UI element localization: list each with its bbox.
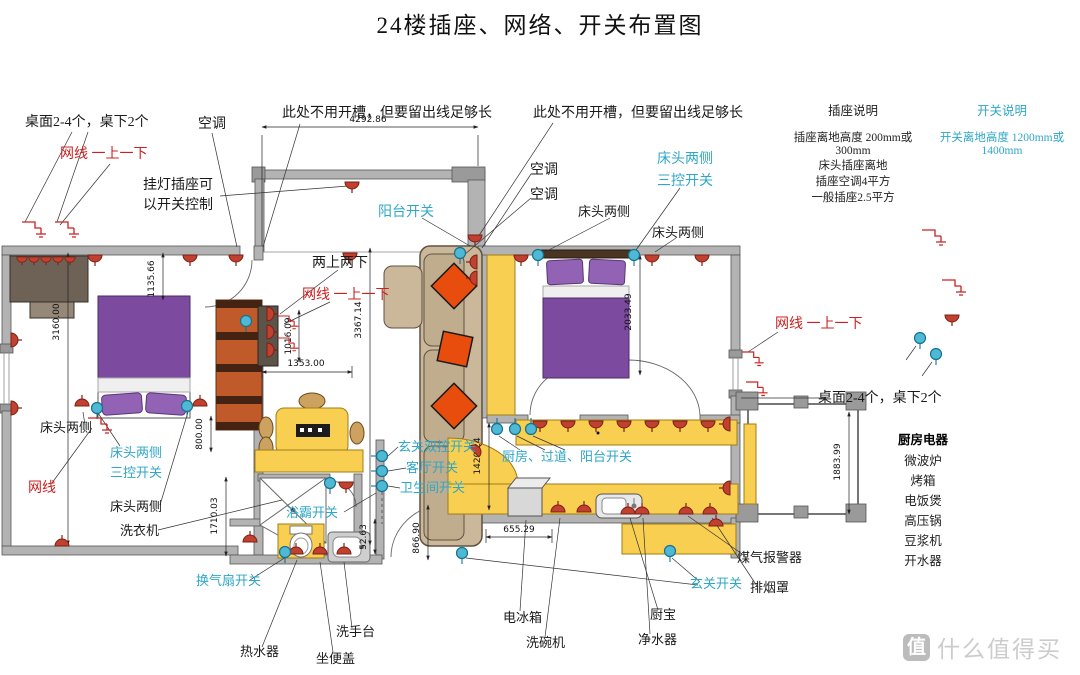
label-gas-alarm: 煤气报警器 (737, 551, 802, 565)
wall-segment (255, 170, 485, 179)
pillow (101, 393, 142, 416)
dining-table (259, 393, 364, 459)
socket-icon (55, 535, 69, 546)
chair (299, 393, 325, 409)
wall-segment (255, 179, 264, 252)
dim-text: 3367.14 (354, 301, 364, 338)
console-cabinet (255, 450, 363, 472)
label-lamp-2: 以开关控制 (143, 198, 213, 213)
socket-icon (945, 315, 959, 326)
pillow (546, 259, 583, 285)
label-range-hood: 排烟罩 (750, 581, 789, 595)
floorplan-drawing: 4292.86 1135.66 3160.00 1016.09 1353.00 … (0, 0, 1080, 675)
network-line-icon (22, 222, 46, 237)
label-entry-switch: 玄关开关 (690, 577, 742, 591)
socket-icon (11, 401, 22, 415)
network-point-icon (629, 250, 640, 267)
dim-text: 1135.66 (147, 260, 157, 297)
label-net-left: 网线 (28, 481, 56, 496)
label-slot-note-1: 此处不用开槽，但要留出线足够长 (282, 106, 492, 121)
switch-point-icon (457, 548, 468, 565)
watermark: 值 什么值得买 (903, 630, 1062, 664)
label-water-purifier: 净水器 (638, 633, 677, 647)
chair (350, 422, 364, 444)
label-bed1-sides-cyan: 床头两侧 (110, 446, 162, 460)
wall-column (794, 506, 808, 518)
wardrobe-1 (216, 300, 262, 430)
pillow (588, 259, 625, 285)
label-net-top-left: 网线 一上一下 (60, 147, 148, 162)
dim-text: 1353.00 (287, 359, 324, 369)
socket-icon (183, 255, 197, 266)
network-point-icon (931, 349, 942, 366)
network-point-icon (915, 333, 926, 350)
label-washing-machine: 洗衣机 (120, 524, 159, 538)
wall-segment (468, 180, 485, 254)
label-fridge: 电冰箱 (503, 611, 542, 625)
socket-icon (645, 255, 659, 266)
bed-1 (98, 296, 190, 418)
dim-text: 2033.49 (624, 293, 634, 330)
floorplan-page: 24楼插座、网络、开关布置图 插座说明 插座离地高度 200mm或300mm 床… (0, 0, 1080, 675)
label-ac-mid-1: 空调 (530, 163, 558, 178)
socket-icon (88, 255, 102, 266)
dim-text: 1883.99 (833, 443, 843, 480)
dim-text: 866.90 (412, 522, 422, 554)
chair (259, 417, 273, 439)
label-bathroom-switch: 卫生间开关 (400, 481, 465, 495)
balcony-cabinet (744, 424, 756, 504)
kitchen-counter-bottom (448, 484, 738, 514)
headboard (541, 250, 631, 258)
label-bed1-side-b: 床头两侧 (110, 500, 162, 514)
watermark-brand: 什么值得买 (937, 630, 1062, 664)
label-toilet-lid: 坐便盖 (316, 652, 355, 666)
switch-point-icon (371, 466, 388, 477)
socket-icon (514, 255, 528, 266)
dim-text: 3160.00 (52, 303, 62, 340)
label-net-right: 网线 一上一下 (775, 317, 863, 332)
label-bath-heater-switch: 浴霸开关 (286, 506, 338, 520)
socket-icon (193, 395, 207, 406)
socket-icon (11, 333, 22, 347)
label-bed2-side-a: 床头两侧 (578, 205, 630, 219)
ceiling-point (597, 432, 600, 435)
network-line-icon (922, 230, 946, 245)
wall-column (729, 350, 742, 358)
label-water-heater: 热水器 (240, 645, 279, 659)
label-wash-basin: 洗手台 (336, 625, 375, 639)
socket-icon (345, 182, 359, 193)
label-dishwasher: 洗碗机 (526, 636, 565, 650)
label-net-mid: 网线 一上一下 (302, 288, 390, 303)
dim-text: 800.00 (195, 418, 205, 450)
label-lamp-1: 挂灯插座可 (143, 178, 213, 193)
label-ac-mid-2: 空调 (530, 188, 558, 203)
socket-icon (229, 255, 243, 266)
wall-segment (254, 246, 263, 260)
dim-text: 52.63 (359, 524, 369, 550)
pillow (145, 393, 186, 416)
label-kitchen-corridor-balcony-switch: 厨房、过道、阳台开关 (502, 450, 632, 464)
label-balcony-switch: 阳台开关 (378, 205, 434, 220)
wall-column (736, 504, 758, 522)
label-slot-note-2: 此处不用开槽，但要留出线足够长 (533, 106, 743, 121)
label-bed2-sides-cyan: 床头两侧 (657, 152, 713, 167)
socket-icon (75, 395, 89, 406)
dim-text: 1016.09 (284, 317, 294, 354)
wall-segment (2, 246, 240, 255)
dim-text: 655.29 (503, 525, 535, 535)
door-arc-bedroom2-right (628, 360, 700, 415)
wall-segment (230, 519, 262, 526)
wardrobe-2 (487, 255, 515, 415)
label-kitchen-water-heater: 厨宝 (650, 608, 676, 622)
label-bed2-3ctl: 三控开关 (657, 174, 713, 189)
label-bed1-3ctl: 三控开关 (110, 466, 162, 480)
switch-point-icon (371, 451, 388, 462)
network-point-icon (533, 250, 544, 267)
network-line-icon (942, 280, 966, 295)
label-bed1-side-a: 床头两侧 (40, 421, 92, 435)
socket-icon (695, 255, 709, 266)
label-fan-switch: 换气扇开关 (196, 574, 261, 588)
label-desk-note-right: 桌面2-4个，桌下2个 (818, 391, 942, 406)
sofa-pillow (437, 331, 473, 367)
label-desk-note-left: 桌面2-4个，桌下2个 (25, 115, 149, 130)
label-ac-left: 空调 (198, 117, 226, 132)
network-line-icon (55, 222, 79, 237)
label-bed2-side-b: 床头两侧 (652, 226, 704, 240)
watermark-badge: 值 (903, 634, 930, 661)
label-entry-dual-switch: 玄关双控开关 (398, 440, 476, 454)
wall-segment (731, 255, 740, 355)
label-two-up-two-down: 两上两下 (312, 256, 368, 271)
network-line-icon (742, 352, 764, 366)
wall-segment (2, 546, 238, 555)
label-living-switch: 客厅开关 (406, 461, 458, 475)
switch-point-icon (371, 481, 388, 492)
bed-2 (541, 250, 631, 378)
wall-segment (2, 411, 11, 547)
wall-column (736, 392, 758, 410)
